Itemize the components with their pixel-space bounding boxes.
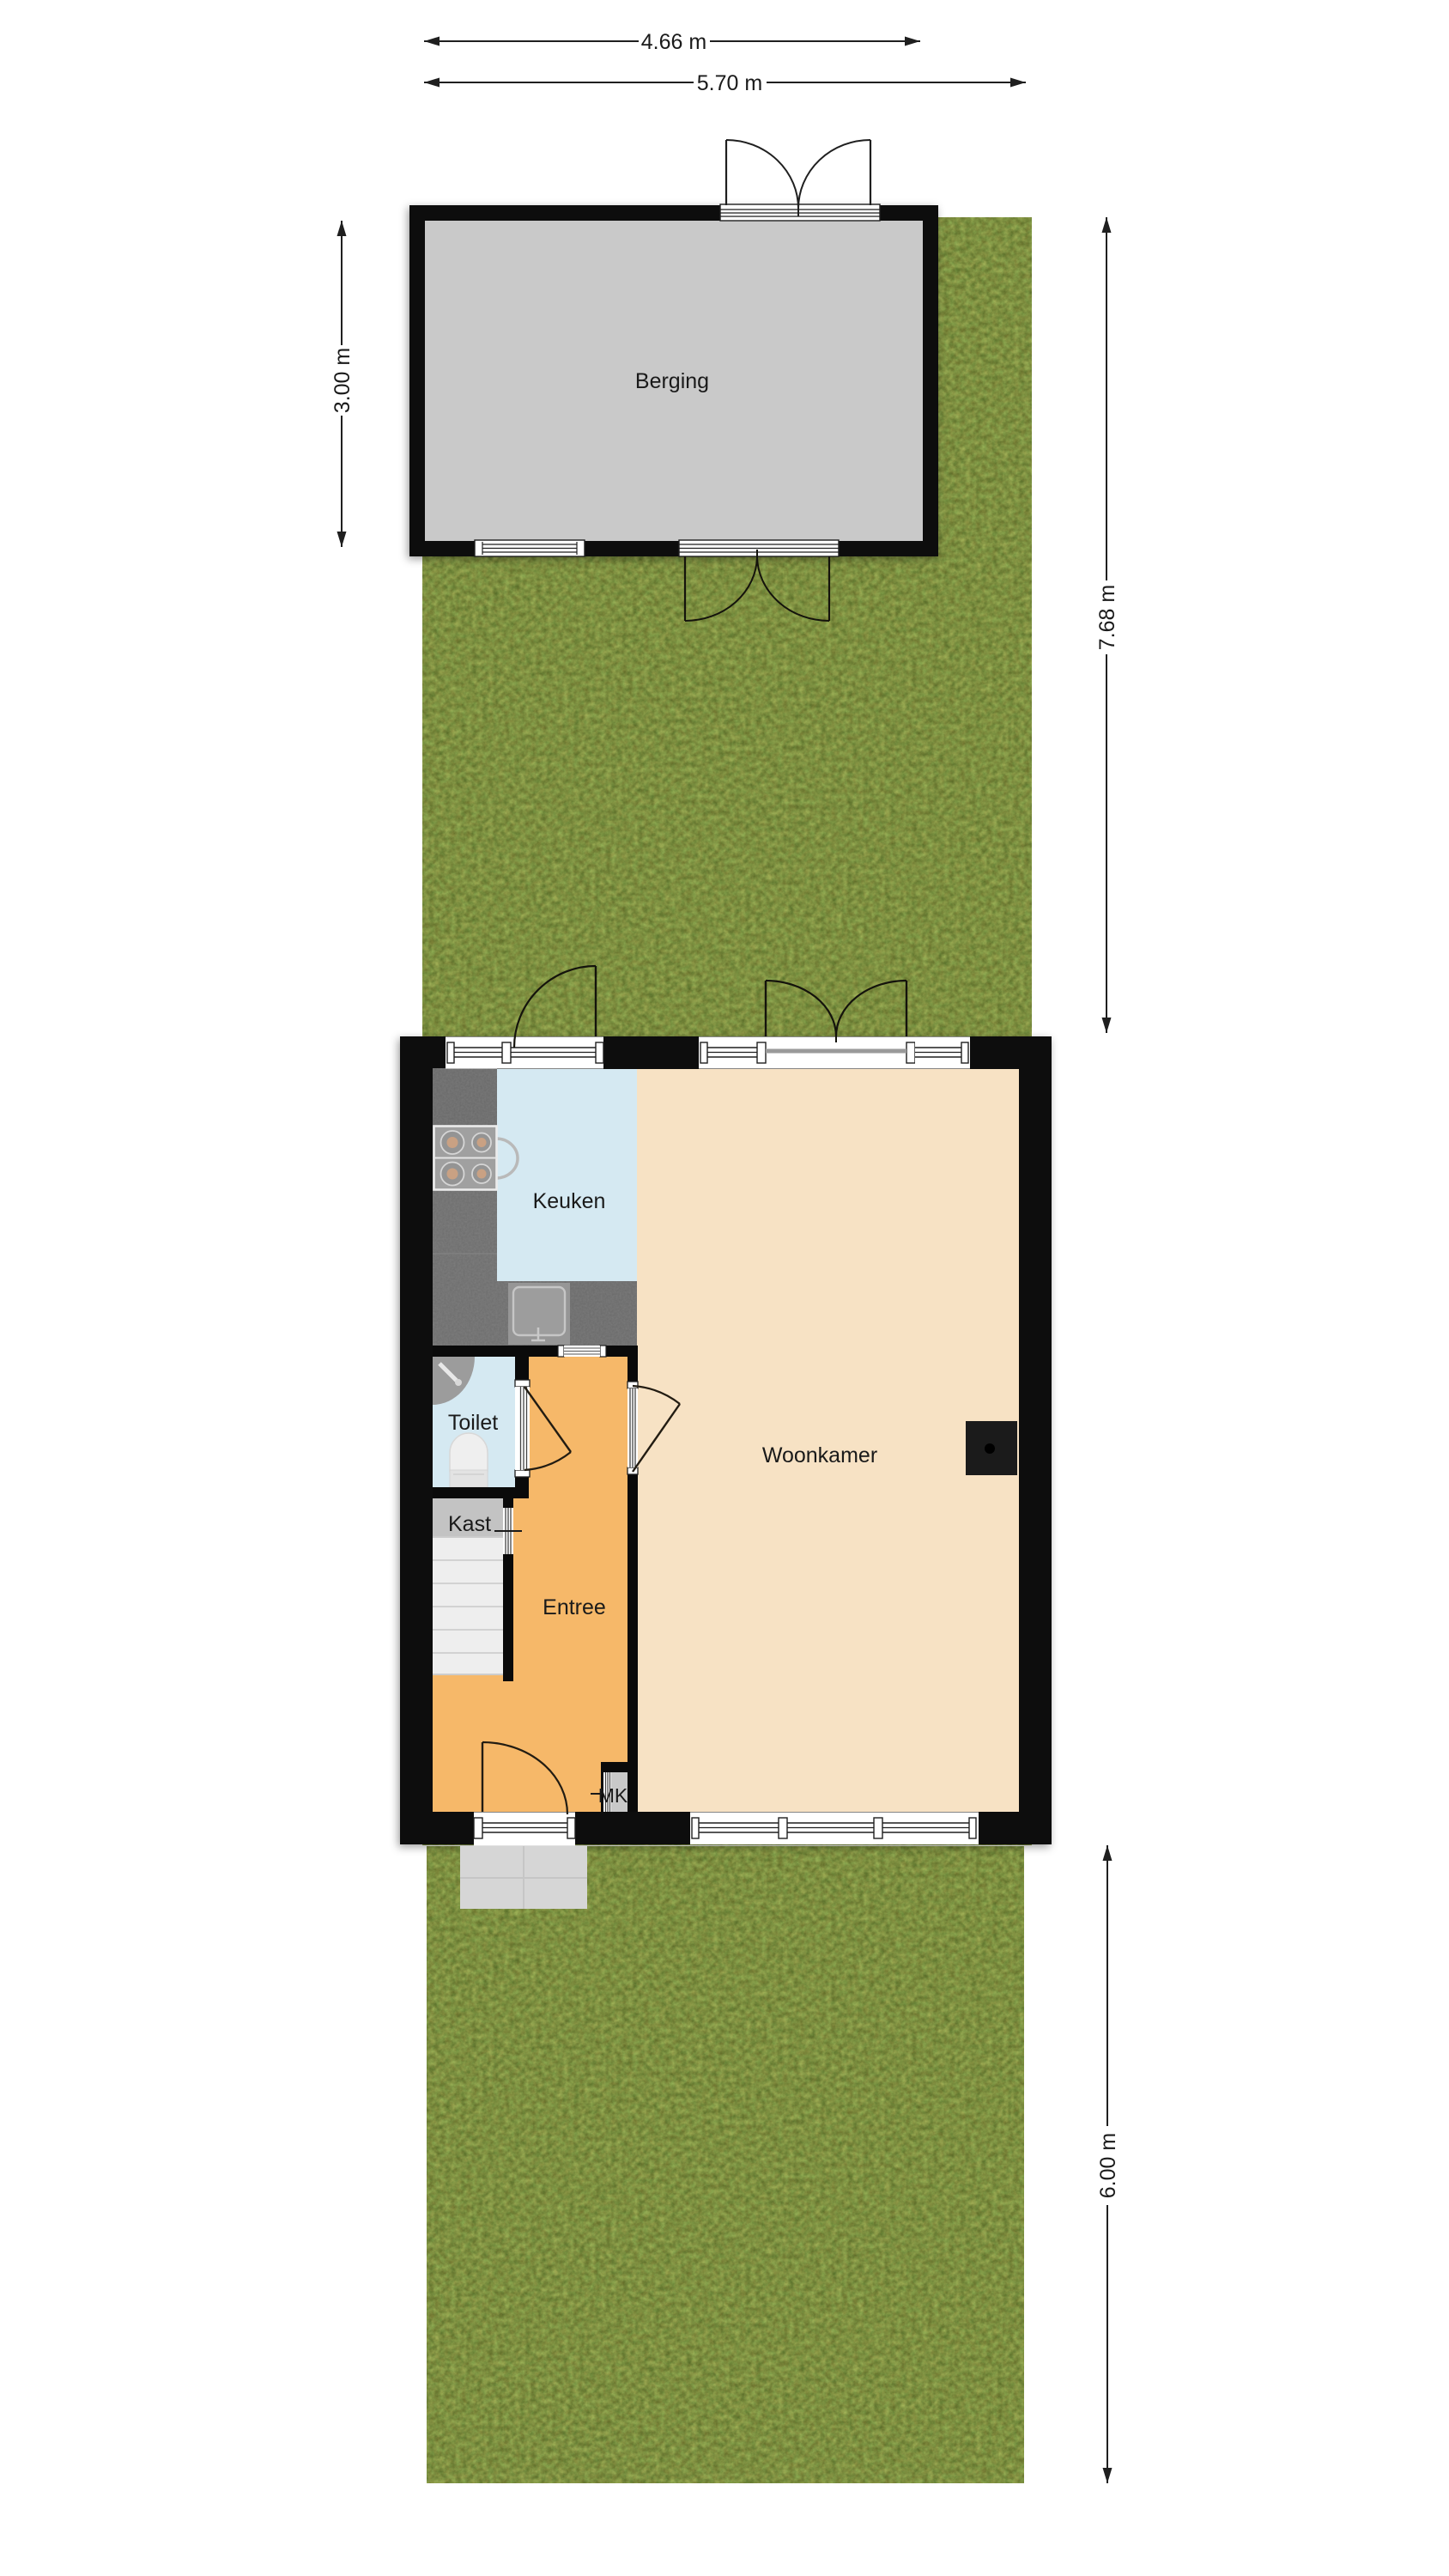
svg-text:3.00 m: 3.00 m bbox=[330, 348, 355, 413]
svg-text:7.68 m: 7.68 m bbox=[1095, 585, 1119, 650]
svg-text:5.70 m: 5.70 m bbox=[697, 71, 762, 95]
svg-text:Woonkamer: Woonkamer bbox=[762, 1443, 877, 1467]
svg-text:Toilet: Toilet bbox=[448, 1411, 498, 1435]
svg-text:MK: MK bbox=[598, 1784, 628, 1807]
svg-text:Keuken: Keuken bbox=[533, 1189, 606, 1213]
svg-text:Kast: Kast bbox=[448, 1512, 491, 1536]
svg-text:Entree: Entree bbox=[543, 1595, 606, 1619]
svg-text:6.00 m: 6.00 m bbox=[1096, 2133, 1120, 2198]
svg-text:4.66 m: 4.66 m bbox=[641, 30, 706, 54]
svg-text:Berging: Berging bbox=[635, 369, 709, 393]
